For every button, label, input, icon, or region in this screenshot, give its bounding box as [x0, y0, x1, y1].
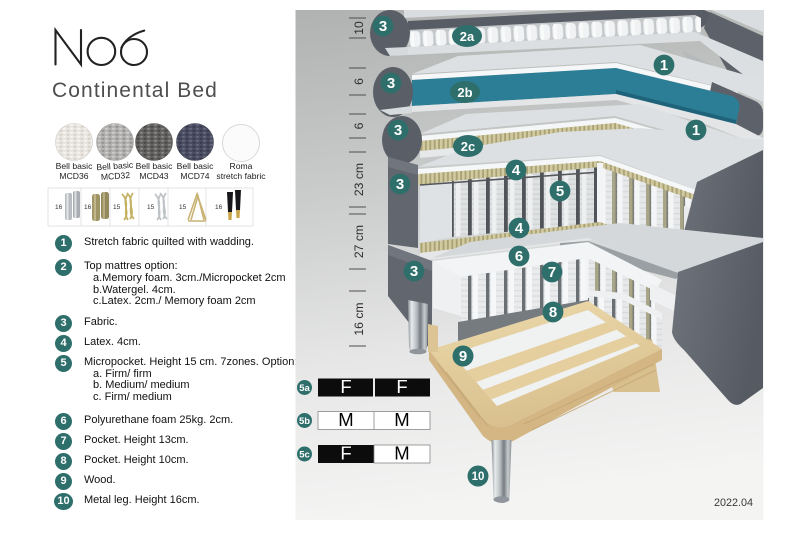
svg-text:16 cm: 16 cm [352, 302, 366, 335]
svg-text:23 cm: 23 cm [352, 163, 366, 196]
svg-text:3: 3 [396, 176, 404, 193]
svg-text:F: F [340, 443, 351, 464]
svg-text:M: M [394, 443, 409, 464]
svg-text:4: 4 [512, 162, 521, 179]
svg-text:5c: 5c [299, 450, 310, 461]
svg-text:1: 1 [660, 57, 668, 74]
svg-text:4: 4 [515, 220, 524, 237]
svg-text:2c: 2c [461, 139, 475, 154]
svg-text:5a: 5a [299, 383, 310, 394]
svg-text:5b: 5b [299, 416, 310, 427]
svg-text:6: 6 [352, 122, 366, 129]
svg-text:3: 3 [394, 122, 402, 139]
svg-text:F: F [340, 376, 351, 397]
svg-text:3: 3 [379, 18, 387, 35]
svg-text:6: 6 [515, 248, 523, 265]
svg-text:2022.04: 2022.04 [714, 497, 753, 509]
svg-text:F: F [396, 376, 407, 397]
svg-text:M: M [338, 409, 353, 430]
svg-text:2a: 2a [460, 29, 475, 44]
svg-text:7: 7 [548, 264, 556, 281]
svg-text:8: 8 [549, 304, 557, 321]
svg-text:27 cm: 27 cm [352, 225, 366, 258]
svg-text:10: 10 [352, 21, 366, 35]
svg-text:3: 3 [410, 263, 418, 280]
svg-text:5: 5 [556, 183, 564, 200]
svg-text:2b: 2b [457, 85, 472, 100]
svg-text:10: 10 [472, 471, 485, 483]
svg-text:M: M [394, 409, 409, 430]
svg-text:3: 3 [387, 75, 395, 92]
svg-text:9: 9 [459, 348, 467, 365]
svg-text:1: 1 [692, 122, 700, 139]
svg-text:6: 6 [352, 78, 366, 85]
